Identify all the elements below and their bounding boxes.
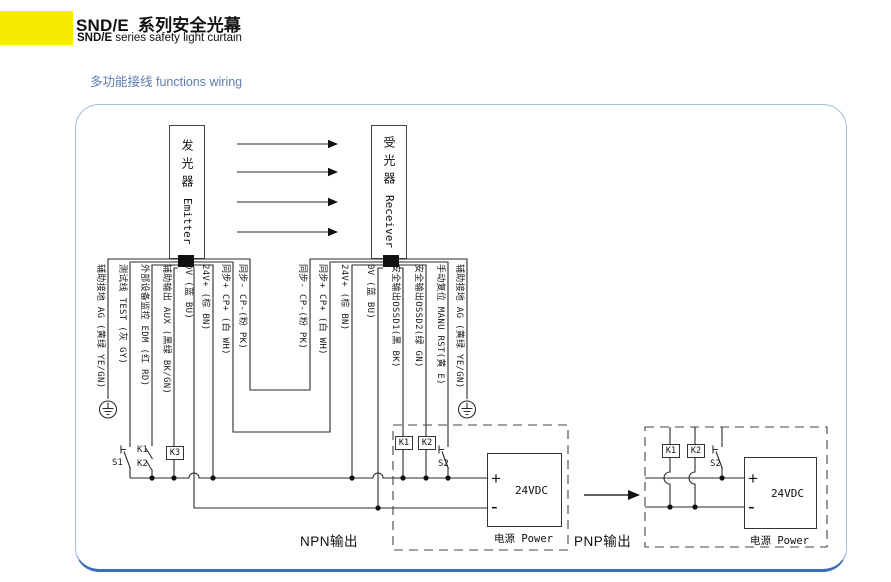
emitter-label-en: Emitter [181,198,194,244]
npn-minus-terminal: - [491,497,498,517]
emitter-wire-label-24v: 24V+ (棕 BN) [200,264,213,414]
emitter-wire-label-cp-minus: 同步- CP-(粉 PK) [237,264,250,414]
pnp-output-label: PNP输出 [574,530,631,550]
receiver-label-en: Receiver [383,195,396,248]
receiver-label: 受光器 Receiver [383,136,395,248]
npn-plus-terminal: + [491,470,501,487]
emitter-box: 发光器 Emitter [169,125,205,259]
section-heading: 多功能接线 functions wiring [90,71,242,90]
pnp-k2-coil: K2 [687,444,705,458]
npn-output-label: NPN输出 [300,530,358,550]
receiver-wire-label-0v: 0V (蓝 BU) [365,264,378,414]
npn-power-supply: + - 24VDC [487,453,562,527]
pnp-k1-coil: K1 [662,444,680,458]
emitter-wire-label-aux: 辅助输出 AUX (黑绿 BK/GN) [161,264,174,414]
k1-contact-label: K1 [137,445,148,455]
pnp-power-supply: + - 24VDC [744,457,817,529]
npn-psu-caption: 电源 Power [487,531,560,546]
emitter-wire-label-0v: 0V (蓝 BU) [183,264,196,414]
pnp-psu-value: 24VDC [759,458,816,528]
npn-psu-value: 24VDC [502,454,561,526]
emitter-label-cn: 发光器 [180,139,194,193]
receiver-wire-label-cp-plus: 同步+ CP+ (白 WH) [317,264,330,414]
emitter-wire-label-edm: 外部设备监控 EDM (红 RD) [139,264,152,414]
yellow-accent-block [0,11,73,45]
receiver-label-cn: 受光器 [382,136,396,190]
npn-s2-label: S2 [438,459,449,469]
emitter-wire-label-cp-plus: 同步+ CP+ (白 WH) [220,264,233,414]
emitter-label: 发光器 Emitter [181,139,193,245]
s1-label: S1 [112,458,123,468]
receiver-box: 受光器 Receiver [371,125,407,259]
pnp-plus-terminal: + [748,470,758,487]
pnp-s2-label: S2 [710,459,721,469]
k3-coil: K3 [166,446,184,460]
pnp-minus-terminal: - [748,497,755,517]
receiver-wire-label-ossd2: 安全输出OSSD2(绿 GN) [413,264,426,414]
receiver-wire-label-cp-minus: 同步- CP-(粉 PK) [297,264,310,414]
npn-k1-coil: K1 [395,436,413,450]
page-subtitle: SND/E series safety light curtain [77,32,242,44]
receiver-wire-label-ossd1: 安全输出OSSD1(黑 BK) [390,264,403,414]
receiver-wire-label-manu-rst: 手动复位 MANU RST(黄 E) [435,264,448,414]
k2-contact-label: K2 [137,459,148,469]
subtitle-brand: SND/E [77,32,112,44]
receiver-wire-label-ag: 辅助接地 AG (黄绿 YE/GN) [454,264,467,414]
npn-k2-coil: K2 [418,436,436,450]
emitter-wire-label-test: 测试线 TEST (灰 GY) [117,264,130,414]
emitter-wire-label-ag: 辅助接地 AG (黄绿 YE/GN) [95,264,108,414]
pnp-psu-caption: 电源 Power [744,533,815,548]
page: SND/E 系列安全光幕 SND/E series safety light c… [0,0,891,582]
receiver-wire-label-24v: 24V+ (棕 BN) [339,264,352,414]
subtitle-rest: series safety light curtain [115,32,242,44]
